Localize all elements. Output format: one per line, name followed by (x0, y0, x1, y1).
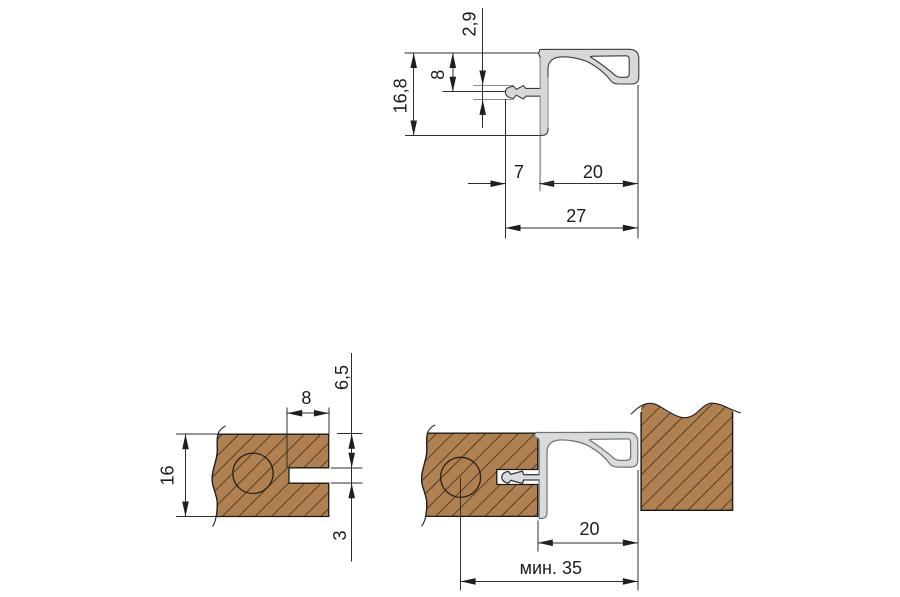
svg-text:6,5: 6,5 (332, 365, 352, 390)
svg-text:20: 20 (579, 519, 599, 539)
svg-text:8: 8 (428, 70, 448, 80)
svg-text:16: 16 (157, 465, 177, 485)
svg-text:7: 7 (514, 162, 524, 182)
svg-text:27: 27 (566, 206, 586, 226)
svg-text:3: 3 (330, 530, 350, 540)
svg-text:8: 8 (301, 388, 311, 408)
svg-text:мин. 35: мин. 35 (520, 558, 582, 578)
svg-text:16,8: 16,8 (391, 78, 411, 113)
svg-text:2,9: 2,9 (460, 11, 480, 36)
svg-text:20: 20 (583, 162, 603, 182)
